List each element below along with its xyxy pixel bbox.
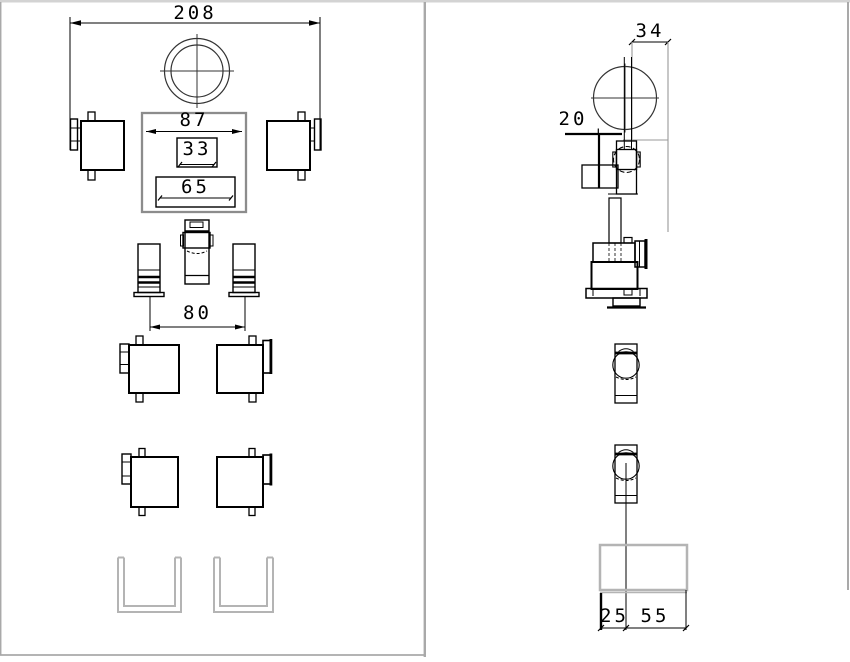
plate-width-dim-label: 87 (146, 111, 242, 130)
sensor-unit-2 (613, 445, 639, 630)
base-plate (600, 545, 687, 593)
gearbox-row2-right (217, 449, 272, 516)
spindle-cylinder (181, 220, 214, 284)
bell-circle (160, 34, 234, 108)
head-circle (591, 64, 659, 133)
base-front-dim-label: 25 (600, 607, 626, 626)
column-span-dim-label: 80 (150, 304, 245, 323)
left-motor (71, 112, 125, 180)
gearbox-row2-left (122, 449, 178, 516)
u-channel-right (214, 558, 273, 613)
left-column (134, 244, 164, 297)
right-column (229, 244, 259, 297)
head-width-dimension (623, 39, 671, 232)
motor-side-view (586, 238, 648, 308)
drawing-canvas: 208 87 33 65 80 34 20 25 55 (0, 0, 850, 662)
opening-width-dim-label: 65 (156, 178, 235, 197)
u-channel-left (118, 558, 181, 613)
sheet-frame (0, 0, 850, 657)
gearbox-row1-right (217, 336, 272, 402)
head-width-dim-label: 34 (630, 22, 670, 41)
overall-width-dim-label: 208 (70, 4, 320, 23)
head-offset-dim-label: 20 (556, 110, 590, 129)
drawing-linework (0, 0, 850, 662)
right-motor (267, 112, 321, 180)
slot-width-dim-label: 33 (177, 140, 217, 159)
base-rear-dim-label: 55 (629, 607, 681, 626)
gearbox-row1-left (120, 336, 179, 402)
lens-assembly (582, 141, 640, 243)
sensor-unit-1 (613, 344, 639, 403)
